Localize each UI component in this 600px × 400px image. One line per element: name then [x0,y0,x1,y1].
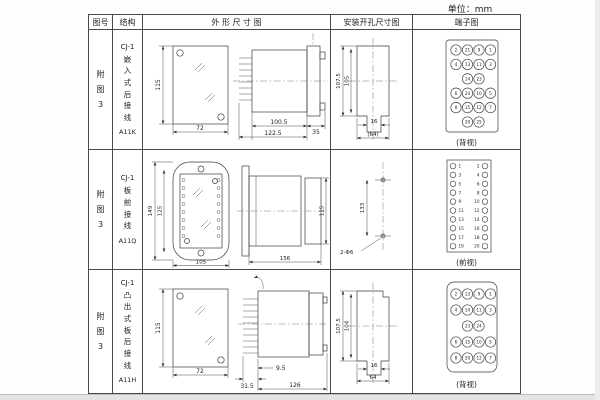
dim-front-width: 72 [196,125,204,132]
header-outline: 外 形 尺 寸 图 [143,15,331,30]
terminal-number: 4 [454,308,457,313]
mounting-cell-row2: 133 2-Φ6 [331,150,413,270]
structure-text: 嵌入式后接线 [123,54,132,124]
mounting-cell-row3: 107.5 104 16 64 [331,270,413,393]
terminal-number: 23 [476,76,482,81]
terminal-number: 8 [454,356,457,361]
fig-no-text: 附图3 [95,309,106,355]
mounting-drawing-a11k: 107.5 105 16 (64) [331,30,412,149]
structure-text: 板前接线 [123,185,132,232]
terminal-circle [482,199,488,205]
terminal-circle [482,172,488,178]
outline-drawing-a11k: 115 72 100.5 35 [143,30,330,149]
fig-no-text: 附图3 [95,67,106,113]
terminal-circle [450,172,456,178]
dim-slot-width: 16 [371,363,378,369]
terminal-number: 24 [476,324,482,329]
terminal-number: 6 [454,91,457,96]
terminal-number: 10 [476,91,482,96]
mounting-cell-row1: 107.5 105 16 (64) [331,30,413,150]
terminal-grid: 213914141132324615105820127 [450,289,495,363]
outline-cell-row2: 149 125 105 156 [143,150,331,270]
model-text: CJ-1 [121,174,135,182]
terminal-cell-row3: 213914141132324615105820127 (背视) [413,270,520,393]
dim-panel-depth: 9.5 [276,365,286,372]
terminal-block [447,160,491,252]
dim-cutout-inner-height: 104 [345,320,351,331]
screw-hole-icon [177,292,183,298]
screw-hole-icon [198,166,204,172]
outline-cell-row1: 115 72 100.5 35 [143,30,331,150]
terminal-circle [482,217,488,223]
dim-side-height: 115 [320,205,326,216]
terminal-number: 19 [458,244,464,249]
dim-pin-depth: 31.5 [240,383,254,390]
terminal-number: 20 [464,356,470,361]
terminal-number: 12 [476,356,482,361]
terminal-number: 7 [458,190,461,195]
type-code: A11Q [119,237,137,245]
dim-cutout-inner-height: 105 [345,75,351,86]
mounting-plate [173,162,229,260]
view-label: (前视) [456,257,477,268]
terminal-block [446,40,498,132]
header-structure: 结构 [113,15,143,30]
dim-total-depth: 122.5 [264,130,281,137]
view-label: (背视) [456,137,477,148]
terminal-circle [450,208,456,214]
terminal-number: 13 [458,217,464,222]
header-fig-no: 图号 [89,15,113,30]
dim-front-width: 72 [196,368,204,375]
terminal-circle [482,190,488,196]
terminal-diagram-a11q: 1234567891011121314151617181920 [414,158,520,254]
structure-text: 凸出式板后接线 [123,290,132,371]
header-terminal: 端子图 [413,15,520,30]
terminal-number: 8 [454,105,457,110]
terminal-circle [482,208,488,214]
mounting-drawing-a11h: 107.5 104 16 64 [331,271,412,393]
fig-no-cell-row1: 附图3 [89,30,113,150]
cover [180,174,222,248]
dim-slot-width: 16 [371,119,378,125]
terminal-number: 8 [476,190,479,195]
terminal-diagram-a11h: 213914141132324615105820127 [414,278,520,376]
hatch-mark [195,306,205,315]
outline-drawing-a11h: 115 72 9.5 31.5 [143,271,330,393]
dim-cutout-width: (64) [367,132,378,138]
terminal-circle [482,226,488,232]
screw-hole-icon [185,239,190,244]
terminal-number: 14 [464,308,470,313]
terminal-number: 23 [464,324,470,329]
datasheet-page: 单位：mm 图号 结构 外 形 尺 寸 图 安装开孔尺寸图 端子图 附图3 CJ… [0,0,600,400]
terminal-pins [239,58,252,100]
terminal-number: 15 [464,340,470,345]
terminal-number: 2 [454,292,457,297]
terminal-number: 3 [489,308,492,313]
dim-front-height: 115 [155,322,162,334]
front-view: 115 72 [155,289,228,378]
terminal-number: 18 [474,235,480,240]
dim-total-depth: 126 [289,382,301,389]
front-view: 115 72 [155,46,228,135]
spec-table: 图号 结构 外 形 尺 寸 图 安装开孔尺寸图 端子图 附图3 CJ-1 嵌入式… [88,14,521,394]
bent-pin [254,277,263,289]
dim-plate-width: 105 [196,260,207,266]
terminal-circle [482,181,488,187]
terminal-number: 20 [464,120,470,125]
terminal-number: 15 [464,105,470,110]
terminal-number: 11 [476,62,482,67]
structure-cell-row2: CJ-1 板前接线 A11Q [113,150,143,270]
model-text: CJ-1 [121,279,135,287]
terminal-number: 7 [489,356,492,361]
dim-total-depth: 156 [280,256,291,262]
terminal-circle [482,243,488,249]
terminal-cell-row1: 2219141311314236241058151272025 (背视) [413,30,520,150]
hatch-mark [195,63,205,72]
dim-hole-pitch: 133 [360,202,366,213]
fig-no-cell-row2: 附图3 [89,150,113,270]
dim-cutout-outer-height: 107.5 [336,73,342,89]
terminal-number: 7 [489,105,492,110]
terminal-circle [482,163,488,169]
terminal-circle [450,163,456,169]
terminal-number: 5 [458,181,461,186]
terminal-pins [243,299,258,353]
terminal-number: 5 [489,340,492,345]
terminal-grid: 2219141311314236241058151272025 [450,45,495,127]
terminal-number: 5 [489,91,492,96]
terminal-number: 9 [477,48,480,53]
terminal-number: 3 [458,173,461,178]
type-code: A11K [119,128,136,136]
mounting-drawing-a11q: 133 2-Φ6 [331,150,412,269]
terminal-number: 21 [464,48,470,53]
terminal-number: 12 [474,208,480,213]
side-view: 100.5 35 122.5 [233,33,328,140]
terminal-circle [482,234,488,240]
terminal-number: 20 [474,244,480,249]
terminal-circle [450,243,456,249]
terminal-number: 11 [458,208,464,213]
dim-cover-height: 125 [158,205,164,216]
terminal-circle [450,226,456,232]
terminal-number: 9 [458,199,461,204]
view-label: (背视) [456,379,477,390]
terminal-number: 14 [474,217,480,222]
terminal-number: 1 [489,48,492,53]
terminal-circle [450,190,456,196]
dim-flange-depth: 35 [312,129,320,136]
dim-cutout-outer-height: 107.5 [336,317,342,333]
hatch-mark [205,336,215,345]
structure-cell-row3: CJ-1 凸出式板后接线 A11H [113,270,143,393]
terminal-number: 3 [489,62,492,67]
terminal-number: 13 [464,292,470,297]
terminal-number: 2 [454,48,457,53]
hatch-mark [205,93,215,102]
terminal-strip: 1234567891011121314151617181920 [450,163,488,249]
dim-cutout-width: 64 [370,375,377,381]
terminal-number: 16 [474,226,480,231]
hatch-mark [201,220,211,229]
terminal-number: 1 [458,164,461,169]
header-mounting: 安装开孔尺寸图 [331,15,413,30]
screw-hole-icon [218,114,224,120]
terminal-number: 14 [464,76,470,81]
structure-cell-row1: CJ-1 嵌入式后接线 A11K [113,30,143,150]
terminal-circle [450,181,456,187]
terminal-number: 2 [476,164,479,169]
terminal-circle [450,199,456,205]
terminal-number: 11 [476,308,482,313]
screw-hole-icon [177,50,183,56]
dim-front-height: 115 [155,79,162,91]
screw-hole-icon [213,179,218,184]
terminal-number: 17 [458,235,464,240]
terminal-number: 25 [476,120,482,125]
side-view: 156 115 [237,166,329,265]
dim-body-depth: 100.5 [270,119,287,126]
terminal-number: 10 [476,340,482,345]
outline-cell-row3: 115 72 9.5 31.5 [143,270,331,393]
model-text: CJ-1 [121,43,135,51]
front-view: 149 125 105 [148,162,229,268]
type-code: A11H [119,376,137,384]
fig-no-text: 附图3 [95,187,106,233]
page-edge-bottom [0,394,600,400]
hole-spec-label: 2-Φ6 [340,250,354,256]
outline-drawing-a11q: 149 125 105 156 [143,150,330,269]
terminal-number: 13 [464,62,470,67]
terminal-number: 6 [476,181,479,186]
terminal-circle [450,217,456,223]
terminal-circle [450,234,456,240]
hatch-mark [193,188,203,197]
dim-plate-height: 149 [148,205,154,216]
screw-hole-icon [198,250,204,256]
terminal-number: 1 [489,292,492,297]
terminal-number: 9 [477,292,480,297]
terminal-number: 12 [476,105,482,110]
terminal-number: 4 [454,62,457,67]
screw-hole-icon [218,356,224,362]
terminal-diagram-a11k: 2219141311314236241058151272025 [414,38,520,134]
fig-no-cell-row3: 附图3 [89,270,113,393]
terminal-strip-dots [182,179,220,238]
terminal-number: 4 [476,173,479,178]
terminal-number: 15 [458,226,464,231]
terminal-number: 24 [464,91,470,96]
terminal-number: 6 [454,340,457,345]
terminal-number: 10 [474,199,480,204]
side-view: 9.5 31.5 126 [235,277,328,391]
terminal-cell-row2: 1234567891011121314151617181920 (前视) [413,150,520,270]
page-edge-right [595,0,600,400]
